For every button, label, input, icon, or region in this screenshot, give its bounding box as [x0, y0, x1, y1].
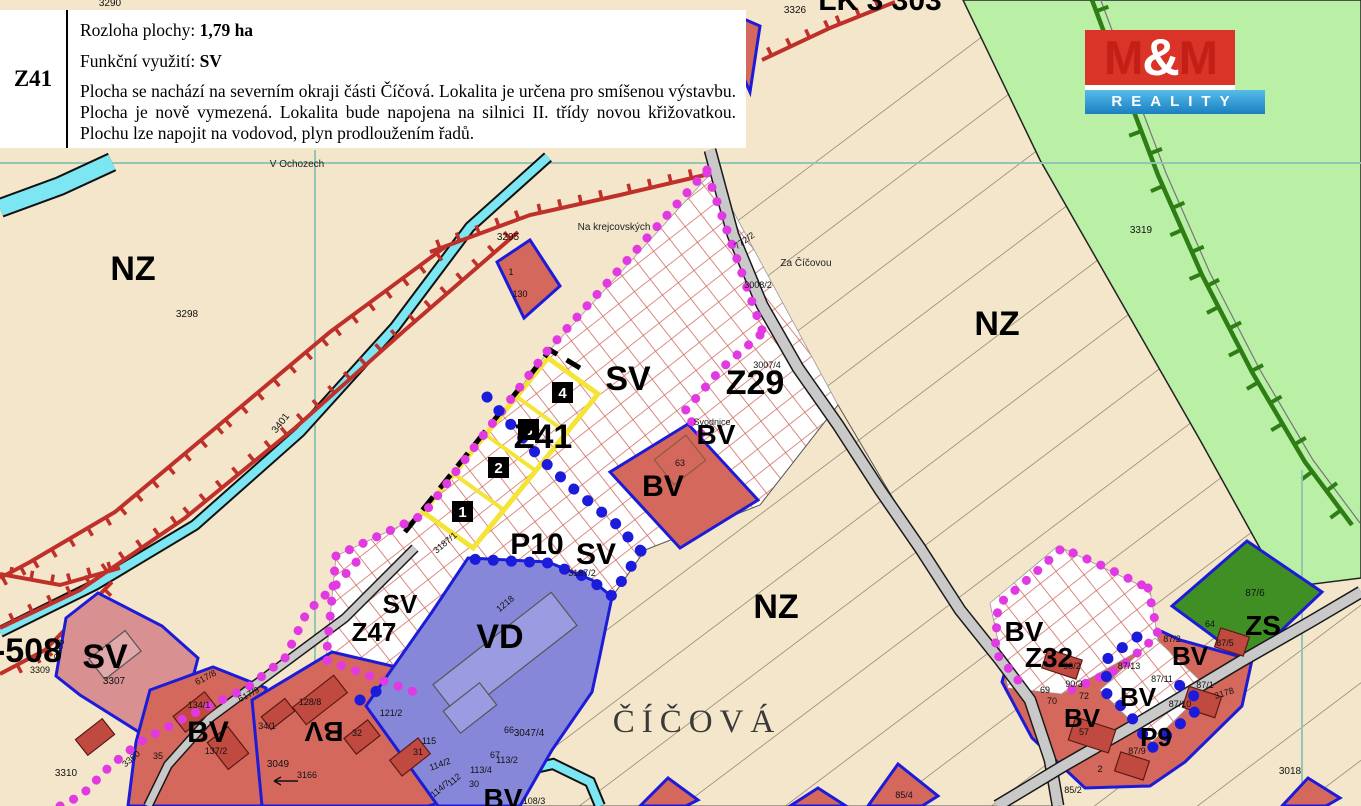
parcel-number: 57	[1079, 727, 1089, 737]
zone-label: BV	[1120, 682, 1157, 712]
parcel-number: 87/6	[1245, 588, 1265, 599]
zone-label: ZS	[1245, 610, 1281, 641]
place-label: Na krejcovských	[578, 222, 651, 233]
parcel-number: 3187/2	[568, 568, 596, 578]
zone-label: P10	[510, 528, 563, 561]
parcel-number: 3008/2	[744, 280, 772, 290]
zone-label: Z41	[514, 418, 573, 456]
parcel-number: 35	[153, 751, 163, 761]
parcel-number: 87/1	[1196, 680, 1214, 690]
logo-mm: M&M	[1085, 30, 1235, 90]
zone-label: BV	[642, 470, 684, 503]
parcel-number: 87/13	[1118, 661, 1141, 671]
parcel-number: 3309	[30, 665, 50, 675]
parcel-number: 3166	[297, 770, 317, 780]
parcel-number: 115	[422, 736, 436, 746]
town-label: ČÍČOVÁ	[613, 702, 782, 740]
parcel-number: 3298	[176, 309, 199, 320]
zone-label: BV	[1172, 641, 1209, 671]
parcel-number: 87/9	[1128, 746, 1146, 756]
zone-label: VD	[476, 618, 523, 656]
parcel-number: 87/2	[1163, 634, 1181, 644]
zoning-map-screenshot: 1234 NZNZNZSVZ29Z41BVBVP10SVSVZ47VDSV-50…	[0, 0, 1361, 806]
use-label: Funkční využití:	[80, 51, 195, 71]
place-label: V Ochozech	[270, 159, 324, 170]
parcel-number: 3310	[55, 768, 78, 779]
parcel-number: 90/3	[1065, 679, 1083, 689]
area-row: Rozloha plochy: 1,79 ha	[80, 20, 736, 41]
zone-label: NZ	[974, 305, 1019, 343]
plot-description: Plocha se nachází na severním okraji čás…	[80, 81, 736, 143]
parcel-number: 3018	[1279, 766, 1302, 777]
plot-marker-number: 2	[494, 460, 502, 477]
parcel-number: 63	[675, 458, 685, 468]
zone-label: SV	[605, 360, 651, 398]
parcel-number: 72	[1079, 691, 1089, 701]
parcel-number: 3307	[103, 676, 126, 687]
parcel-number: 90/2	[1063, 661, 1081, 671]
parcel-number: 32	[352, 728, 362, 738]
zone-label: NZ	[110, 250, 155, 288]
parcel-number: 31	[413, 747, 423, 757]
plot-marker-number: 4	[558, 385, 567, 402]
parcel-number: 87/10	[1169, 699, 1192, 709]
parcel-number: 2	[1097, 764, 1102, 774]
place-label: Svodnice	[693, 417, 730, 427]
parcel-number: 67	[490, 750, 500, 760]
parcel-number: 130	[512, 289, 527, 299]
parcel-number: 108/3	[523, 796, 546, 806]
parcel-number: 87/11	[1151, 674, 1173, 684]
parcel-number: 69	[1040, 685, 1050, 695]
parcel-number: 87/5	[1216, 638, 1234, 648]
parcel-number: 66	[504, 725, 514, 735]
parcel-number: 64	[1205, 619, 1215, 629]
area-value: 1,79 ha	[200, 20, 253, 40]
parcel-number: 113/4	[470, 765, 492, 775]
parcel-number: 85/4	[895, 790, 913, 800]
logo-ampersand: &	[1142, 28, 1178, 88]
parcel-number: 30	[469, 779, 479, 789]
use-value: SV	[200, 51, 222, 71]
zone-label: LK 3 303	[818, 0, 941, 17]
plot-code: Z41	[0, 10, 68, 148]
parcel-number: 85/2	[1064, 785, 1082, 795]
parcel-number: 134/1	[188, 700, 211, 710]
parcel-number: 1	[508, 267, 513, 277]
logo-reality: REALITY	[1085, 90, 1265, 114]
zone-label: Z47	[352, 617, 397, 647]
mm-reality-logo: M&M REALITY	[1085, 30, 1267, 114]
zone-label: SV	[383, 589, 418, 619]
use-row: Funkční využití: SV	[80, 51, 736, 72]
parcel-number: 3319	[1130, 225, 1153, 236]
parcel-number: 3290	[99, 0, 122, 9]
parcel-number: 137/2	[205, 746, 228, 756]
parcel-number: 3007/4	[753, 360, 781, 370]
zone-label: NZ	[753, 588, 798, 626]
parcel-number: 3049	[267, 759, 290, 770]
zone-label: SV	[576, 538, 616, 571]
parcel-number: 3295	[497, 232, 520, 243]
zone-label: BV	[484, 783, 523, 806]
parcel-number: 70	[1047, 696, 1057, 706]
zone-label: SV	[82, 638, 128, 676]
info-box-body: Rozloha plochy: 1,79 ha Funkční využití:…	[68, 10, 746, 148]
parcel-number: 3047/4	[514, 728, 545, 739]
logo-m-right: M	[1179, 30, 1216, 85]
parcel-number: 34/1	[258, 721, 276, 731]
zone-label: BV	[304, 716, 343, 747]
info-box: Z41 Rozloha plochy: 1,79 ha Funkční využ…	[0, 10, 746, 148]
logo-m-left: M	[1104, 30, 1141, 85]
place-label: Za Číčovou	[780, 256, 831, 269]
zone-label: BV	[187, 716, 229, 749]
plot-marker-number: 1	[458, 504, 466, 521]
area-label: Rozloha plochy:	[80, 20, 195, 40]
parcel-number: 121/2	[380, 708, 403, 718]
parcel-number: 128/8	[299, 697, 322, 707]
parcel-number: 3326	[784, 5, 807, 16]
